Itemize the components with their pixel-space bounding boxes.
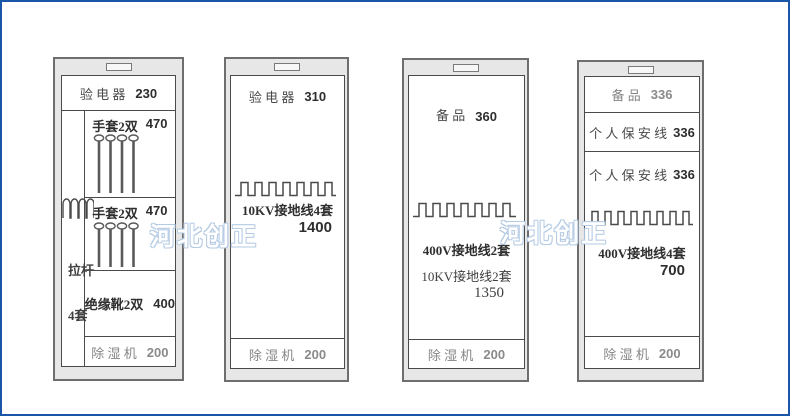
- section-label: 除 湿 机: [603, 344, 649, 363]
- cabinet-4-section-personal-wire-1: 个 人 保 安 线 336: [585, 112, 699, 151]
- cabinet-3: 备 品 360 400V接地线2套 10KV接地线2套 1350 除 湿 机 2…: [402, 58, 529, 382]
- cabinet-1-section-dehumidifier: 除 湿 机 200: [85, 336, 175, 367]
- cabinet-4-section-dehumidifier: 除 湿 机 200: [585, 336, 699, 369]
- section-dimension: 1350: [409, 285, 524, 302]
- cabinet-2-handle: [274, 63, 300, 71]
- cabinet-4: 备 品 336 个 人 保 安 线 336 个 人 保 安 线 336 400V…: [577, 60, 704, 382]
- cabinet-1: 验 电 器 230 拉杆 4套 手套2双: [53, 57, 184, 381]
- cabinet-2-section-dehumidifier: 除 湿 机 200: [231, 338, 344, 369]
- cabinet-3-section-dehumidifier: 除 湿 机 200: [409, 339, 524, 368]
- section-dimension: 230: [135, 86, 157, 101]
- section-dimension: 400: [153, 296, 175, 311]
- section-label: 除 湿 机: [428, 345, 474, 364]
- section-dimension: 700: [585, 262, 699, 279]
- section-label: 除 湿 机: [249, 345, 295, 364]
- section-dimension: 336: [673, 125, 695, 140]
- cabinet-2-section-tester: 验 电 器 310: [231, 76, 344, 116]
- section-dimension: 470: [146, 203, 168, 222]
- cabinet-4-section-ground-wires: 400V接地线4套 700: [585, 196, 699, 336]
- section-dimension: 336: [651, 87, 673, 102]
- section-label: 10KV接地线2套: [409, 266, 524, 285]
- section-dimension: 200: [304, 347, 326, 362]
- ground-wire-wave-icon: [235, 180, 341, 197]
- section-label: 除 湿 机: [91, 343, 137, 362]
- cabinet-1-rod-column: 拉杆 4套: [62, 111, 85, 367]
- cabinet-2-section-ground-wires: 10KV接地线4套 1400: [231, 116, 344, 338]
- section-label: 400V接地线2套: [409, 240, 524, 259]
- section-dimension: 1400: [231, 219, 344, 236]
- section-label: 手套2双: [92, 203, 138, 222]
- section-dimension: 470: [146, 116, 168, 135]
- section-label: 10KV接地线4套: [231, 200, 344, 219]
- cabinet-1-section-boots: 绝缘靴2双 400: [85, 270, 175, 336]
- ground-wire-wave-icon: [588, 209, 696, 226]
- section-label: 个 人 保 安 线: [589, 123, 667, 142]
- rod-pins-icon: [93, 222, 139, 268]
- ground-wire-wave-icon: [413, 201, 521, 218]
- section-label: 400V接地线4套: [585, 243, 699, 262]
- section-dimension: 310: [304, 89, 326, 104]
- cabinet-1-section-tester: 验 电 器 230: [62, 76, 175, 110]
- cabinet-layout-diagram: 验 电 器 230 拉杆 4套 手套2双: [0, 0, 790, 416]
- cabinet-3-section-ground-wires: 400V接地线2套 10KV接地线2套 1350: [409, 133, 524, 339]
- section-dimension: 200: [659, 346, 681, 361]
- cabinet-3-section-spares: 备 品 360: [409, 76, 524, 133]
- section-label: 手套2双: [92, 116, 138, 135]
- cabinet-1-handle: [106, 63, 132, 71]
- section-label: 备 品: [436, 105, 465, 124]
- section-label: 绝缘靴2双: [85, 294, 144, 313]
- section-label: 验 电 器: [80, 84, 126, 103]
- cabinet-4-section-personal-wire-2: 个 人 保 安 线 336: [585, 151, 699, 196]
- cabinet-2: 验 电 器 310 10KV接地线4套 1400 除 湿 机 200: [224, 57, 349, 382]
- section-dimension: 336: [673, 167, 695, 182]
- section-label: 个 人 保 安 线: [589, 165, 667, 184]
- cabinet-1-section-gloves-1: 手套2双 470: [85, 111, 175, 197]
- cabinet-3-handle: [453, 64, 479, 72]
- rod-pins-icon: [93, 134, 139, 194]
- section-dimension: 360: [475, 109, 497, 124]
- cabinet-4-handle: [628, 66, 654, 74]
- section-dimension: 200: [483, 347, 505, 362]
- cabinet-1-section-gloves-2: 手套2双 470: [85, 197, 175, 270]
- section-dimension: 200: [147, 345, 169, 360]
- section-label: 验 电 器: [249, 87, 295, 106]
- cabinet-4-section-spares: 备 品 336: [585, 77, 699, 112]
- section-label: 备 品: [612, 85, 641, 104]
